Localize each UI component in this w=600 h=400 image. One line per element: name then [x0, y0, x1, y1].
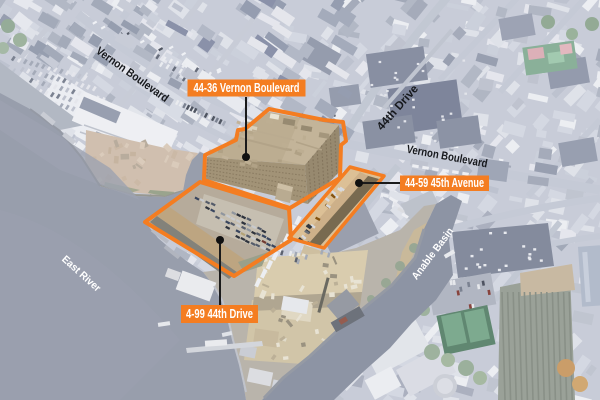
- svg-text:4-99 44th Drive: 4-99 44th Drive: [186, 306, 253, 321]
- svg-text:44-59 45th Avenue: 44-59 45th Avenue: [405, 175, 484, 190]
- svg-text:44-36 Vernon Boulevard: 44-36 Vernon Boulevard: [194, 80, 300, 95]
